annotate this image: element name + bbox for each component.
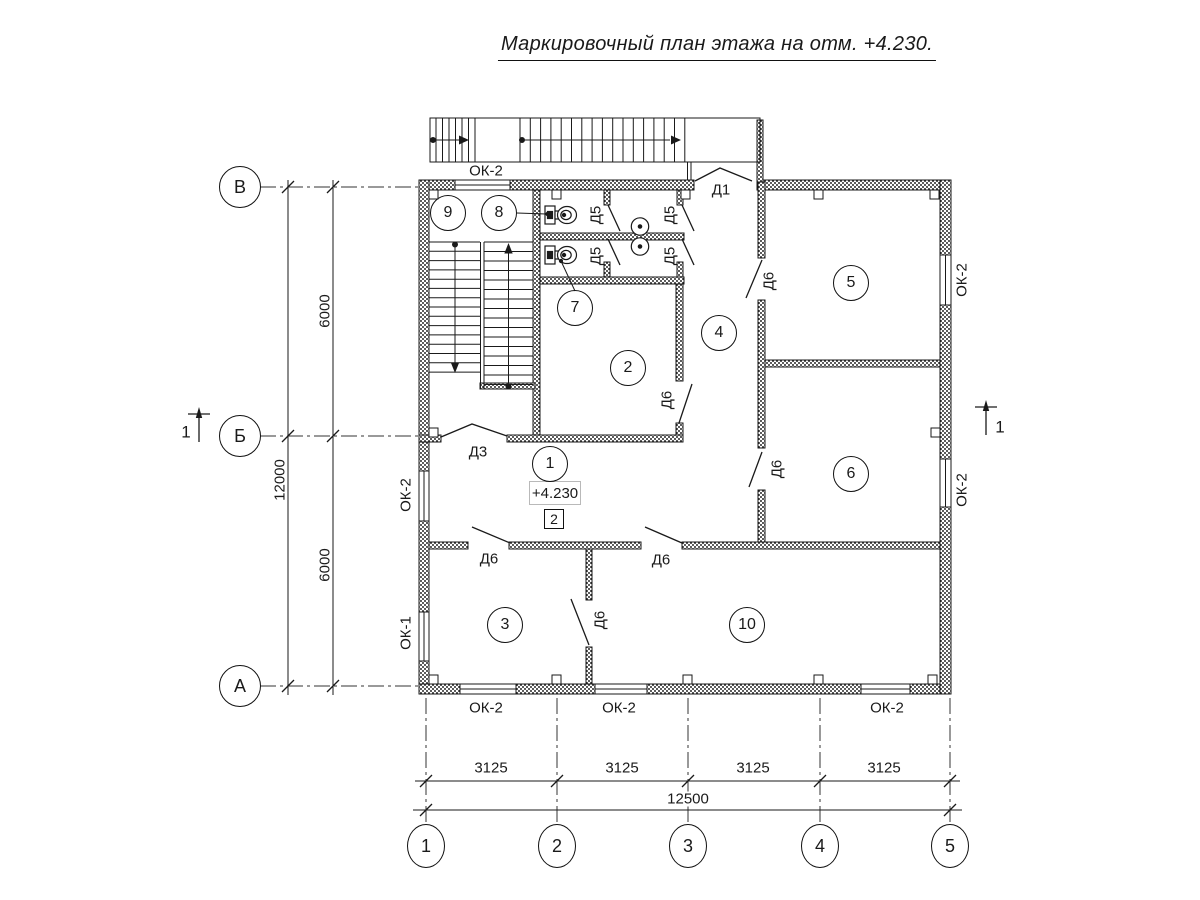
dimension-text: 3125 (472, 761, 509, 776)
door-label: Д6 (652, 553, 671, 568)
room-number: 2 (610, 350, 646, 386)
door-label: Д5 (663, 247, 678, 266)
door-label: Д5 (589, 206, 604, 225)
floor-plan-sheet: Маркировочный план этажа на отм. +4.230.… (0, 0, 1200, 900)
grid-bubble-row: А (219, 665, 261, 707)
door-label: Д6 (480, 552, 499, 567)
room-number: 7 (557, 290, 593, 326)
door-label: Д1 (712, 183, 731, 198)
grid-bubble-col: 3 (669, 824, 707, 868)
dimension-text: 3125 (865, 761, 902, 776)
grid-bubble-row: В (219, 166, 261, 208)
dimension-text: 3125 (603, 761, 640, 776)
door-label: Д6 (770, 460, 785, 479)
elevation-mark: +4.230 (529, 481, 581, 505)
floor-type-marker: 2 (544, 509, 564, 529)
window-label: ОК-2 (469, 701, 503, 716)
door-label: Д6 (762, 272, 777, 291)
floor-plan-linework (0, 0, 1200, 900)
toilet-icon (545, 206, 577, 224)
dimension-text: 3125 (734, 761, 771, 776)
grid-bubble-row: Б (219, 415, 261, 457)
interior-stair (429, 242, 533, 389)
door-label: Д6 (593, 611, 608, 630)
drawing-title: Маркировочный план этажа на отм. +4.230. (498, 33, 936, 61)
window-label: ОК-1 (399, 616, 414, 650)
door-label: Д5 (589, 247, 604, 266)
dimension-text: 12000 (273, 457, 288, 503)
window-label: ОК-2 (955, 263, 970, 297)
door-label: Д3 (469, 445, 488, 460)
window-label: ОК-2 (399, 478, 414, 512)
grid-bubble-col: 4 (801, 824, 839, 868)
door-label: Д5 (663, 206, 678, 225)
room-number: 10 (729, 607, 765, 643)
dimension-text: 6000 (318, 292, 333, 329)
window-label: ОК-2 (870, 701, 904, 716)
dimension-text: 12500 (665, 792, 711, 807)
room-number: 3 (487, 607, 523, 643)
grid-bubble-col: 1 (407, 824, 445, 868)
door-label: Д6 (660, 391, 675, 410)
room-number: 4 (701, 315, 737, 351)
grid-bubble-col: 2 (538, 824, 576, 868)
dimension-text: 6000 (318, 546, 333, 583)
window-label: ОК-2 (602, 701, 636, 716)
room-number: 5 (833, 265, 869, 301)
section-label: 1 (181, 424, 190, 441)
window-label: ОК-2 (955, 473, 970, 507)
section-label: 1 (995, 419, 1004, 436)
room-number: 1 (532, 446, 568, 482)
grid-bubble-col: 5 (931, 824, 969, 868)
room-number: 9 (430, 195, 466, 231)
room-number: 8 (481, 195, 517, 231)
window-label: ОК-2 (469, 164, 503, 179)
room-number: 6 (833, 456, 869, 492)
